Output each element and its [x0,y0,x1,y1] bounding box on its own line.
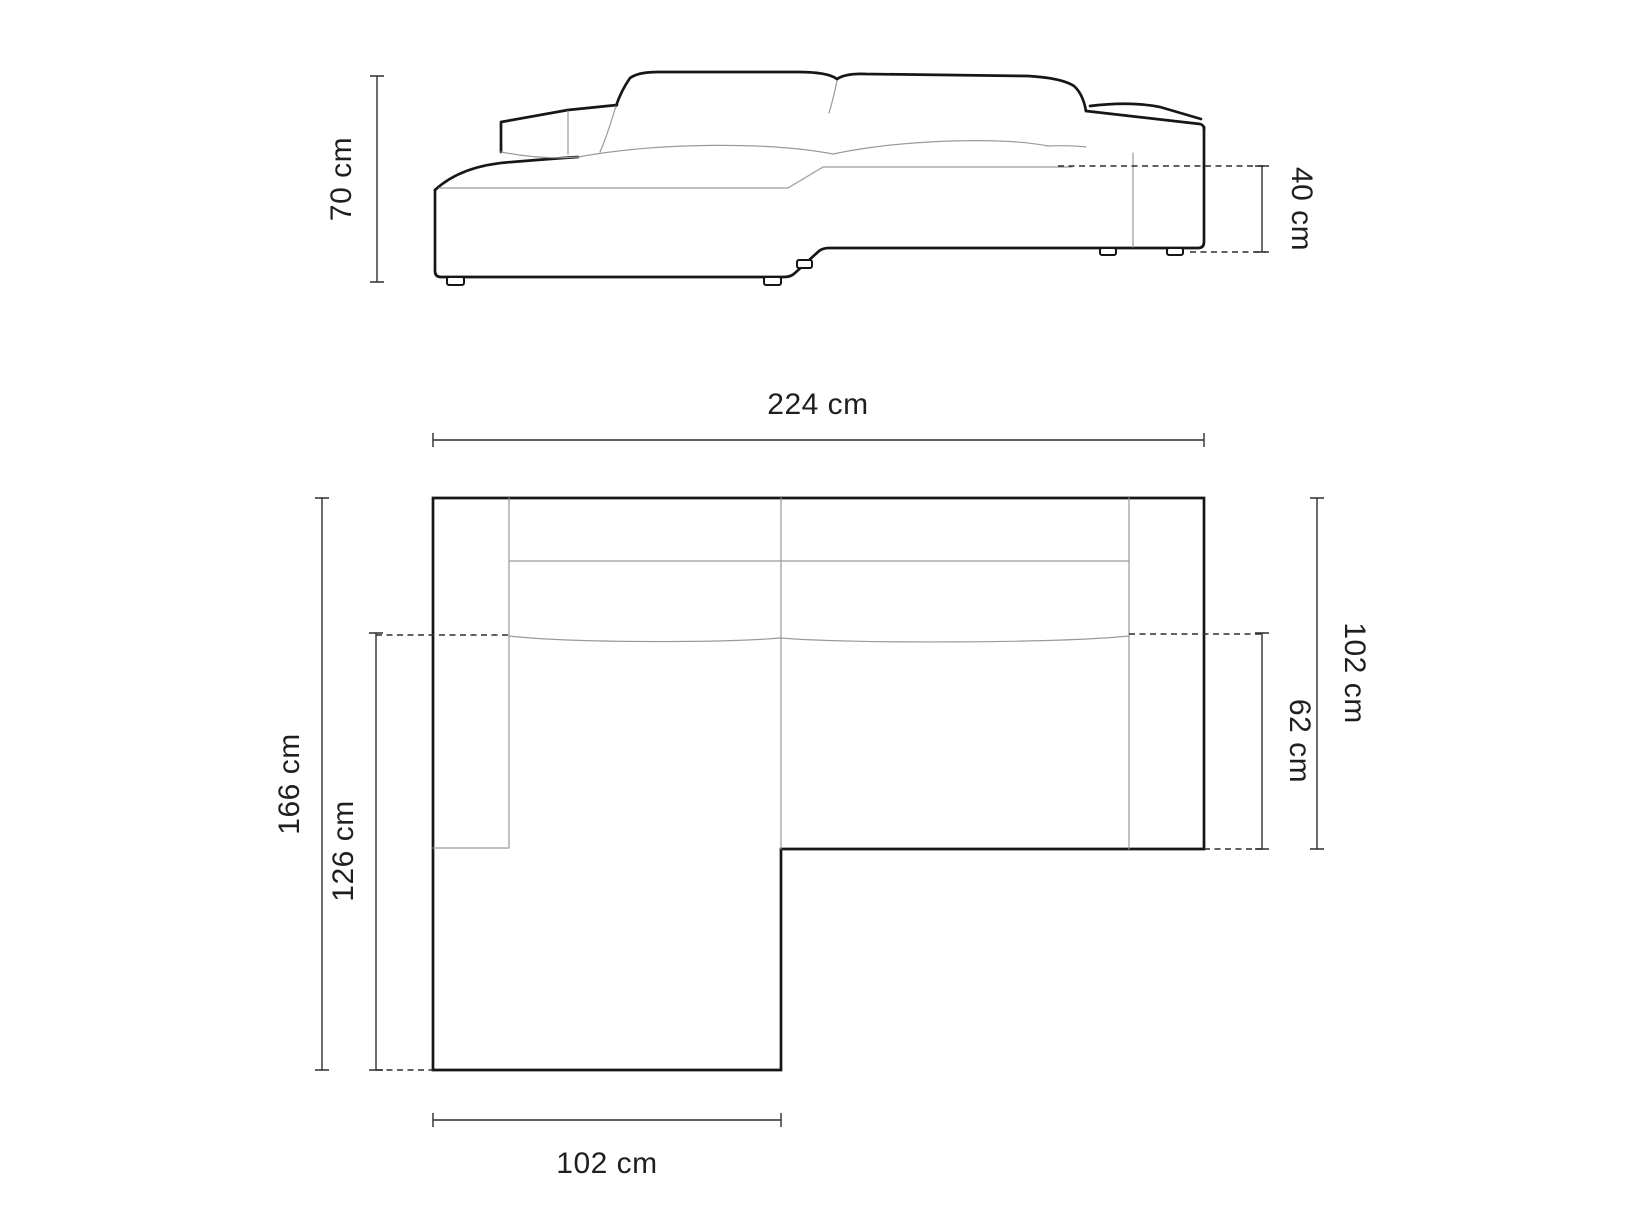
top-plan-view: 224 cm 166 cm 126 cm 102 cm 62 cm 102 cm [273,388,1371,1180]
sofa-back-cushion-right [837,74,1086,111]
diagram-canvas: 70 cm 40 cm 224 cm 166 cm 1 [0,0,1637,1228]
sofa-foot [447,277,464,285]
chaise-width-label: 102 cm [556,1147,657,1180]
sofa-back-cushion-left-edge-lower [600,106,616,152]
sofa-chaise-top-edge [435,157,578,190]
seat-height-label: 40 cm [1285,167,1318,251]
sofa-foot [797,260,812,268]
chaise-depth-label: 126 cm [327,800,360,901]
sofa-left-armrest [501,105,617,152]
height-label: 70 cm [325,137,358,221]
sofa-back-cushion-split [829,81,837,113]
sofa-foot [1167,248,1183,255]
seat-depth-label: 62 cm [1283,699,1316,783]
total-depth-label: 166 cm [273,733,306,834]
total-width-label: 224 cm [767,388,868,421]
front-elevation-view: 70 cm 40 cm [325,72,1318,285]
sofa-front-body-outline [435,127,1204,277]
sofa-seat-cushion-wave [578,141,1086,157]
sofa-foot [764,277,781,285]
side-depth-label: 102 cm [1338,622,1371,723]
sofa-back-cushion-left [616,72,837,106]
plan-outline [433,498,1204,1070]
sofa-dimension-diagram: 70 cm 40 cm 224 cm 166 cm 1 [0,0,1637,1228]
sofa-base-corner-diagonal [788,167,823,188]
sofa-foot [1100,248,1116,255]
